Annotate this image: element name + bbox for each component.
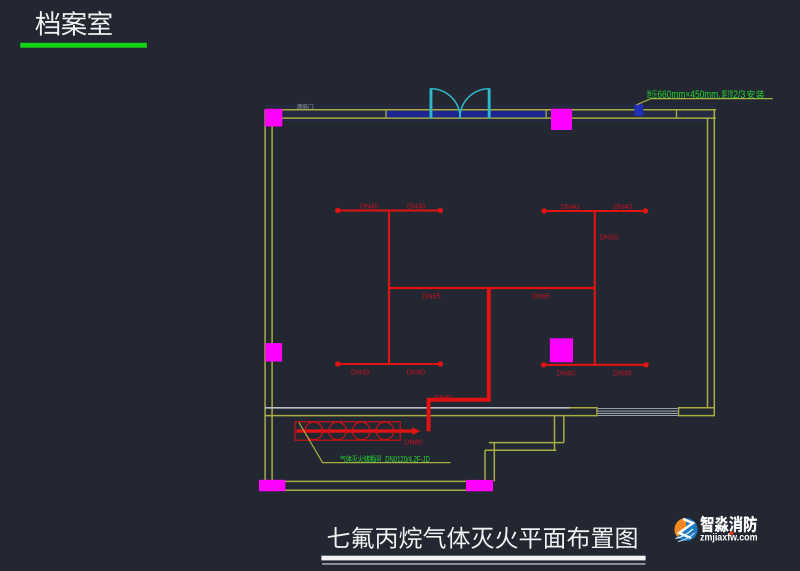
svg-text:2/3: 2/3	[733, 89, 745, 101]
svg-text:DN40: DN40	[351, 368, 370, 377]
svg-text:DN50: DN50	[600, 233, 619, 242]
svg-text:DN80: DN80	[404, 437, 423, 446]
svg-text:DN40: DN40	[613, 369, 632, 378]
svg-text:DN65: DN65	[422, 292, 441, 301]
svg-text:660mm×450mm,: 660mm×450mm,	[657, 89, 720, 101]
svg-text:DN40: DN40	[360, 202, 379, 211]
svg-text:DN40: DN40	[614, 202, 633, 211]
svg-text:DN40: DN40	[561, 202, 580, 211]
svg-text:DN40: DN40	[557, 369, 576, 378]
svg-text:zmjiaxfw.com: zmjiaxfw.com	[700, 533, 758, 544]
svg-text:DN65: DN65	[532, 292, 551, 301]
svg-text:DN40: DN40	[407, 368, 426, 377]
svg-text:DN40: DN40	[407, 202, 426, 211]
svg-text:DN0120/4.2F-JD: DN0120/4.2F-JD	[385, 454, 430, 464]
svg-text:DN80: DN80	[434, 393, 453, 402]
